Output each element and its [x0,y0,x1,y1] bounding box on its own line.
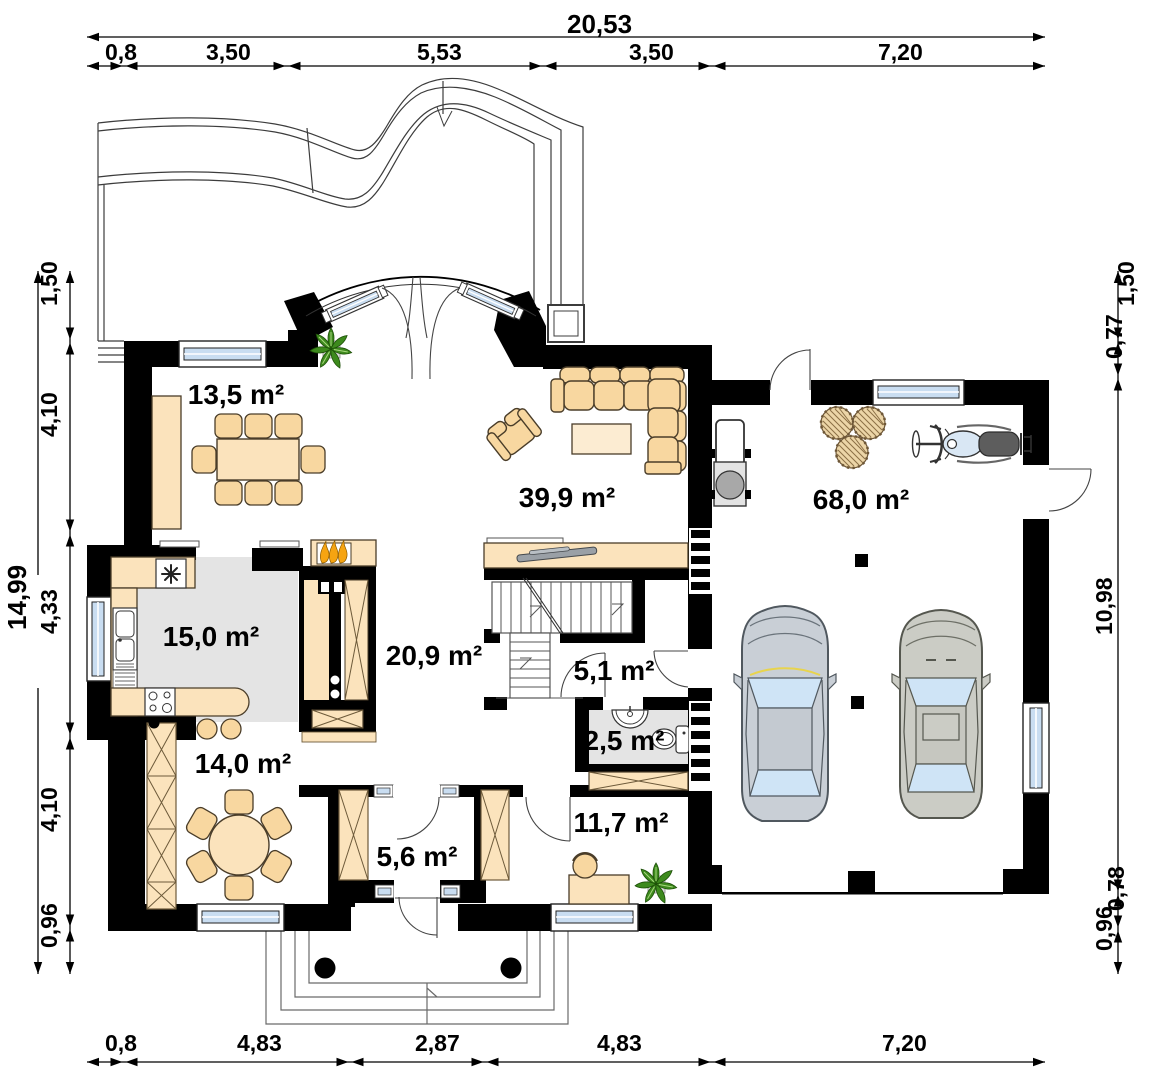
svg-text:0,77: 0,77 [1101,314,1127,359]
svg-text:0,8: 0,8 [105,1030,137,1056]
svg-text:4,10: 4,10 [36,787,62,832]
svg-text:4,33: 4,33 [36,589,62,634]
svg-text:0,8: 0,8 [105,39,137,65]
svg-text:3,50: 3,50 [206,39,251,65]
svg-text:3,50: 3,50 [629,39,674,65]
svg-text:7,20: 7,20 [878,39,923,65]
svg-text:5,1 m²: 5,1 m² [574,655,655,686]
svg-text:20,53: 20,53 [567,9,632,39]
svg-text:39,9 m²: 39,9 m² [519,482,616,513]
svg-text:0,96: 0,96 [1091,906,1117,951]
svg-text:68,0 m²: 68,0 m² [813,484,910,515]
svg-text:14,99: 14,99 [2,565,32,630]
svg-text:10,98: 10,98 [1091,577,1117,635]
svg-text:2,87: 2,87 [415,1030,460,1056]
svg-text:7,20: 7,20 [882,1030,927,1056]
svg-text:4,10: 4,10 [36,392,62,437]
svg-text:15,0 m²: 15,0 m² [163,621,260,652]
svg-text:13,5 m²: 13,5 m² [188,379,285,410]
svg-text:5,53: 5,53 [417,39,462,65]
svg-text:1,50: 1,50 [36,261,62,306]
svg-text:14,0 m²: 14,0 m² [195,748,292,779]
svg-text:0,96: 0,96 [36,903,62,948]
svg-text:11,7 m²: 11,7 m² [574,807,669,838]
svg-text:4,83: 4,83 [237,1030,282,1056]
svg-text:2,5 m²: 2,5 m² [584,725,665,756]
svg-text:4,83: 4,83 [597,1030,642,1056]
svg-text:5,6 m²: 5,6 m² [377,841,458,872]
svg-text:20,9 m²: 20,9 m² [386,640,483,671]
svg-text:1,50: 1,50 [1113,261,1139,306]
